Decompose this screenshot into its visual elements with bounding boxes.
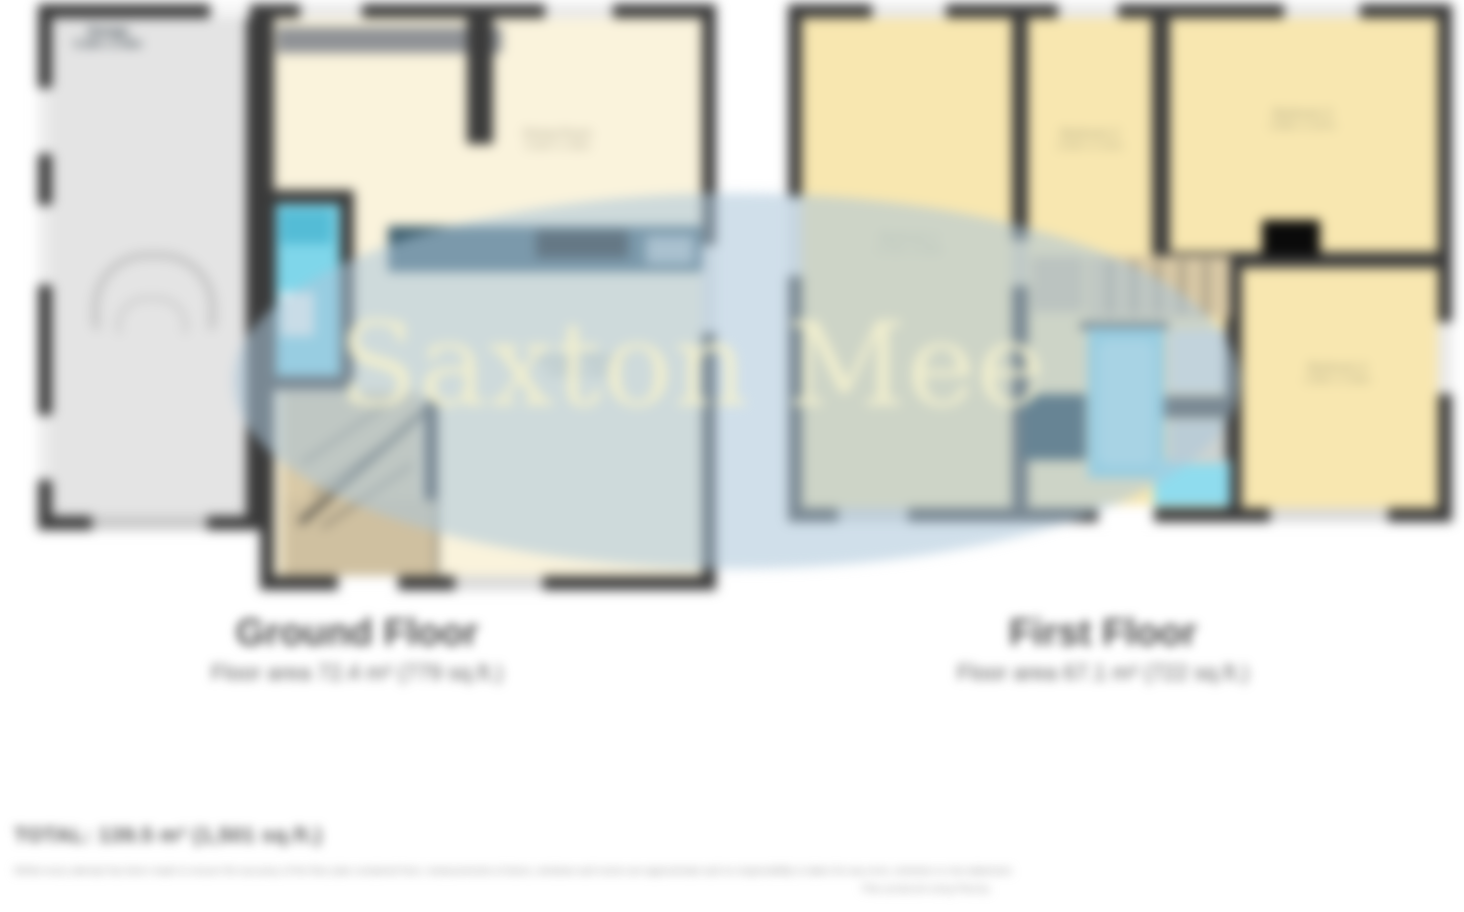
window-gap (1284, 4, 1360, 18)
window-gap (872, 4, 946, 18)
garage-label: Garage 5.18m x 2.46m (58, 24, 158, 52)
interior-wall (467, 4, 493, 144)
bedroom2-label: Bedroom 2 2.62m x 2.31m (1035, 126, 1145, 154)
window-gap (300, 4, 362, 18)
bedroom4-label: Bedroom 4 2.90m x 2.69m (1280, 360, 1395, 388)
total-area-line: TOTAL: 139.5 m² (1,501 sq.ft.) (14, 824, 322, 848)
blurred-content: Garage 5.18m x 2.46m Dining Room 3.33m x… (0, 0, 1464, 912)
watermark-text: Saxton Mee (338, 308, 1098, 424)
ground-floor-title: Ground Floor (157, 612, 557, 655)
ground-floor-area: Floor area 72.4 m² (779 sq.ft.) (157, 660, 557, 686)
window-gap (545, 4, 613, 18)
door-gap (338, 576, 398, 590)
window-gap (1058, 4, 1118, 18)
front-room-label: Dining Room 3.33m x 2.95m (470, 126, 645, 154)
window-gap (1438, 322, 1452, 394)
window-gap (210, 4, 250, 18)
window-gap (38, 205, 52, 285)
window-gap (1270, 508, 1388, 522)
sink-fixture (280, 210, 332, 244)
window-gap (38, 88, 52, 154)
garage-door-gap (92, 516, 207, 530)
window-gap (38, 415, 52, 480)
first-floor-area: Floor area 67.1 m² (722 sq.ft.) (903, 660, 1303, 686)
disclaimer-text: Whilst every attempt has been made to en… (14, 866, 1013, 877)
floorplan-page: Garage 5.18m x 2.46m Dining Room 3.33m x… (0, 0, 1464, 912)
interior-wall (1152, 18, 1170, 258)
plans-canvas: Garage 5.18m x 2.46m Dining Room 3.33m x… (0, 0, 1464, 912)
stair-step (1204, 260, 1208, 314)
produced-by-text: Plan produced using PlanUp. (862, 884, 992, 895)
chimney-breast (1262, 220, 1320, 256)
bedroom3-label: Bedroom 3 3.96m x 2.87m (1245, 106, 1360, 134)
first-floor-title: First Floor (903, 612, 1303, 655)
window-gap (455, 576, 543, 590)
